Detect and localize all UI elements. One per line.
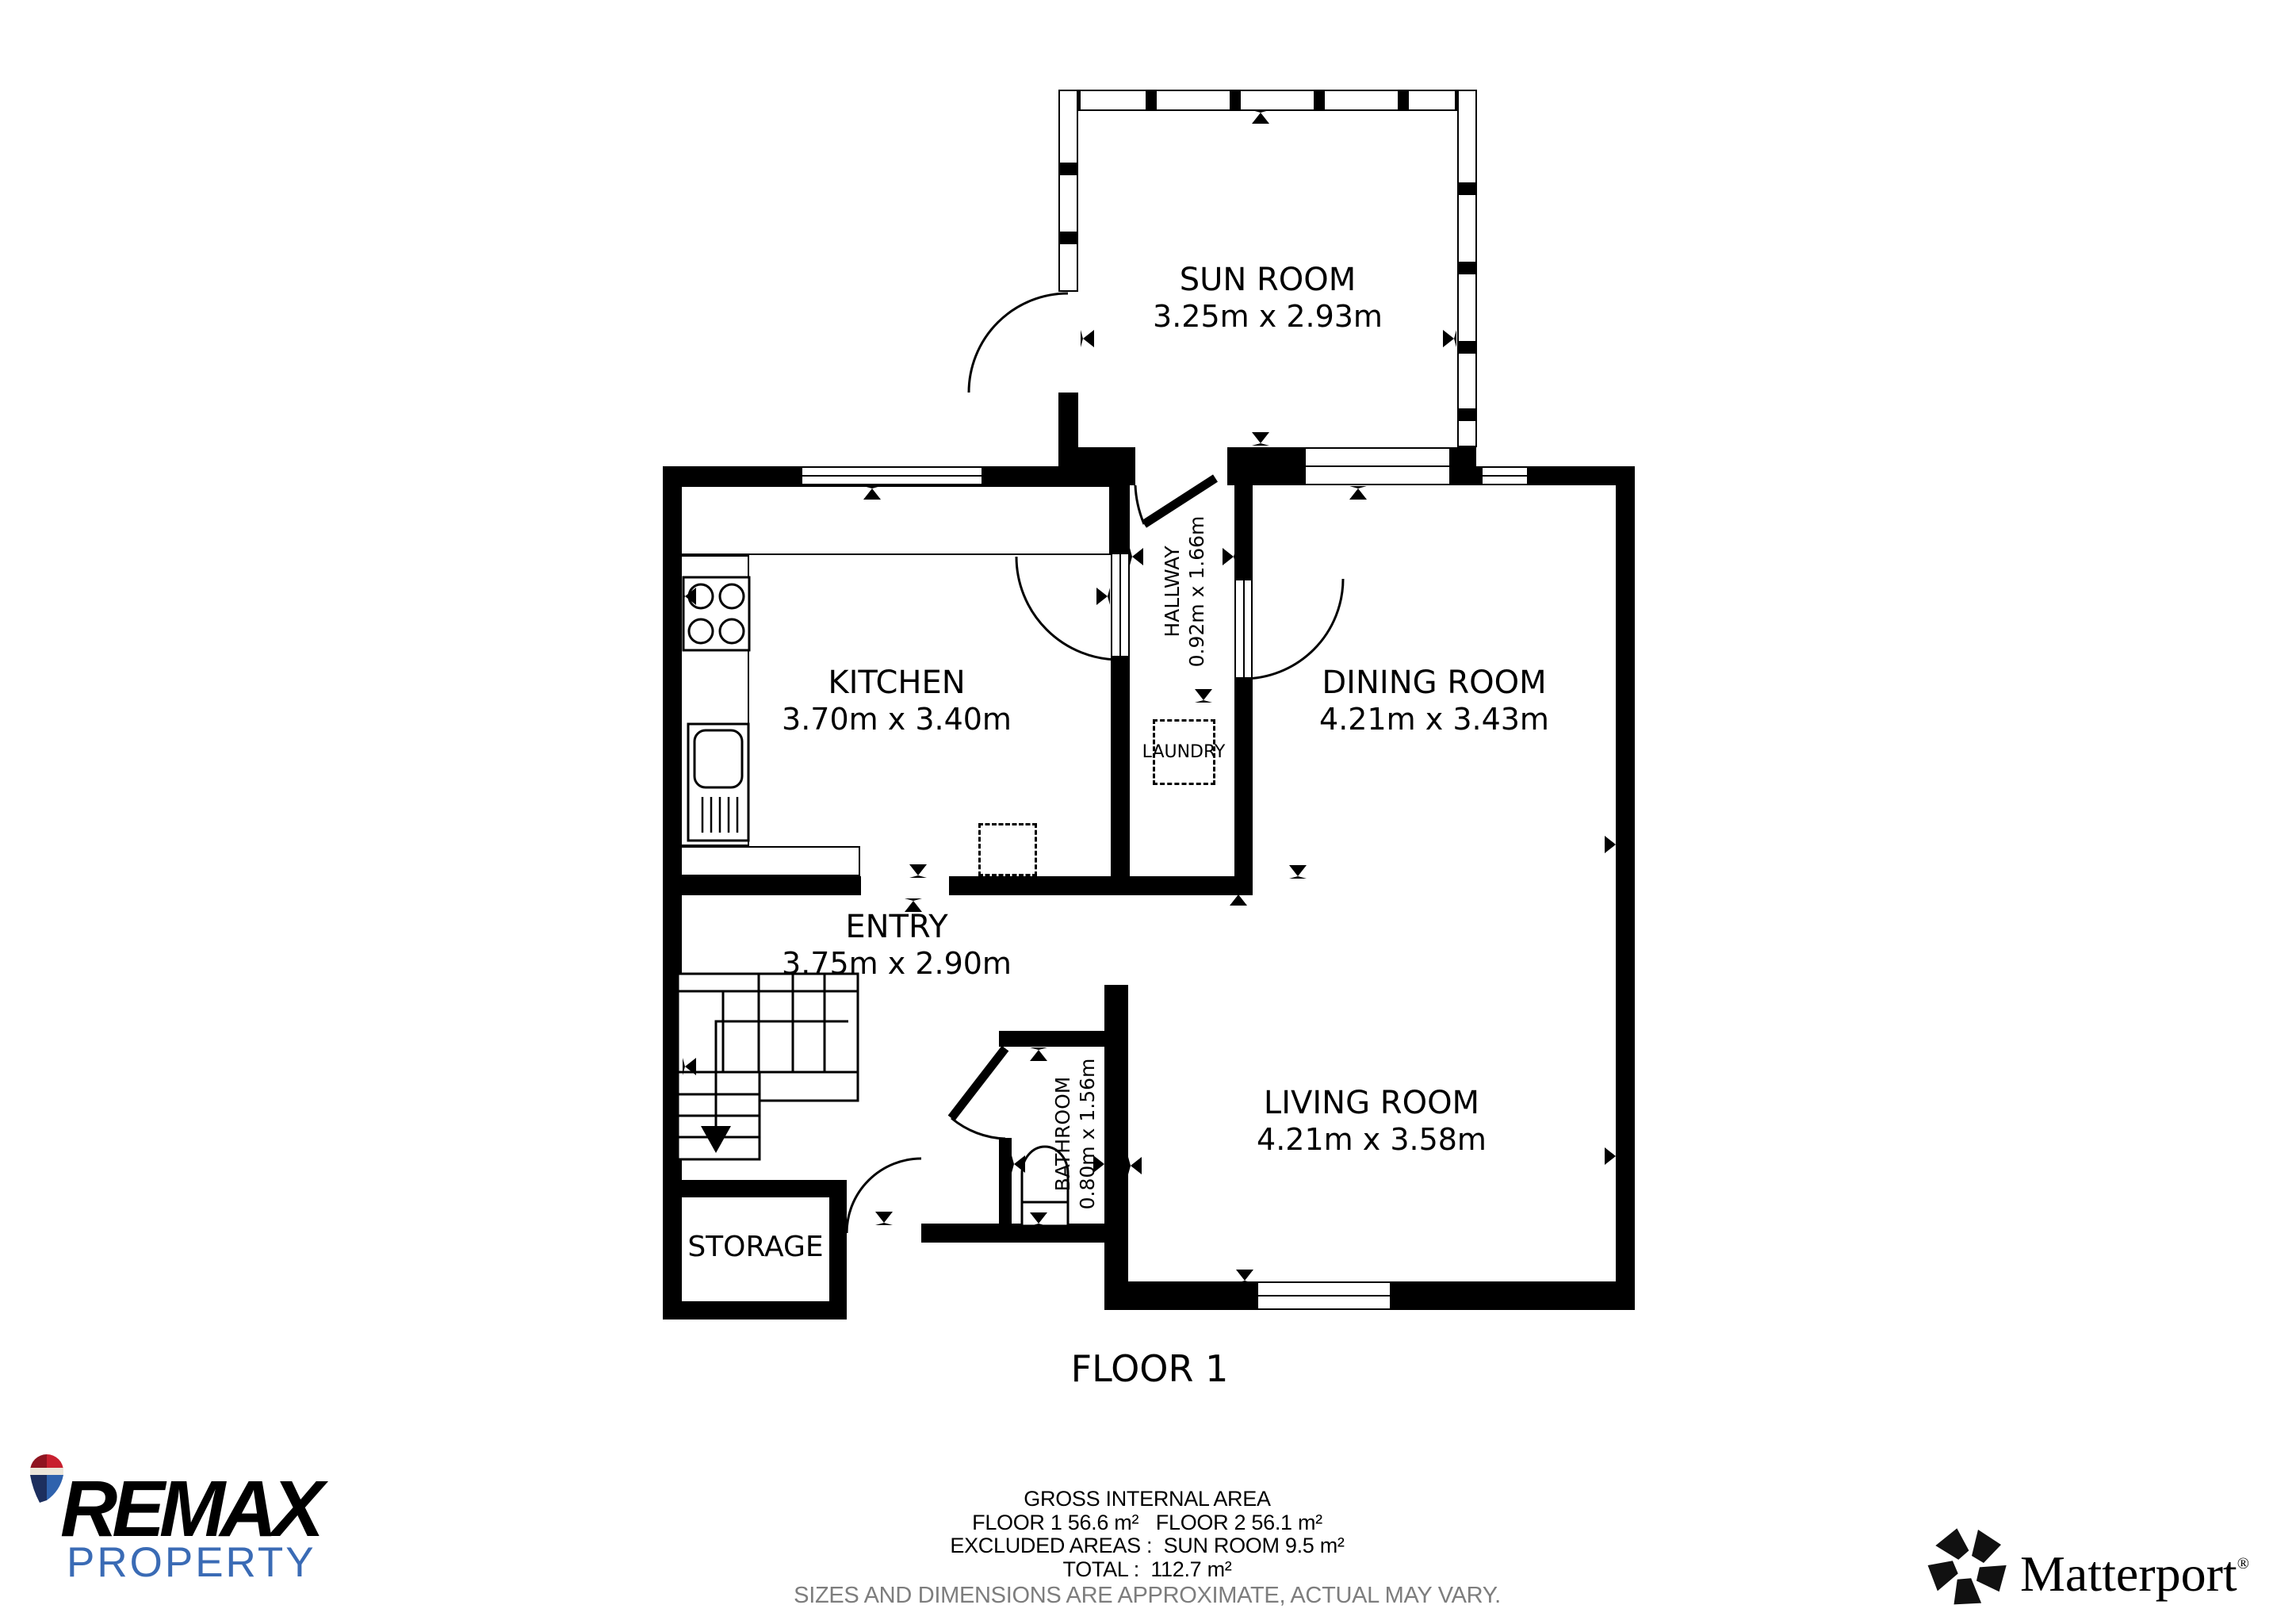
dimension-arrow <box>1012 1155 1025 1173</box>
bathroom-door-leaf <box>951 1048 1005 1118</box>
wall <box>1451 466 1481 485</box>
wall <box>983 466 1135 485</box>
window-mullion <box>1457 408 1477 421</box>
dimension-arrow <box>1252 110 1269 124</box>
floorplan-page: SUN ROOM 3.25m x 2.93m KITCHEN 3.70m x 3… <box>0 0 2296 1624</box>
wall <box>949 876 1253 895</box>
bathroom-label: BATHROOM 0.80m x 1.56m <box>1050 1059 1100 1210</box>
kitchen-door-arc <box>1016 557 1119 660</box>
wall <box>1104 985 1128 1310</box>
window-mullion <box>1146 90 1157 111</box>
dimension-arrow <box>1230 892 1247 906</box>
dining-window-small <box>1481 466 1529 485</box>
sunroom-label: SUN ROOM <box>1180 262 1357 298</box>
kitchen-door-leaf <box>1111 553 1130 657</box>
sunroom-window-wall <box>1058 90 1477 111</box>
dimension-arrow <box>683 588 696 605</box>
window-mullion <box>1457 182 1477 195</box>
kitchen-label: KITCHEN <box>828 665 965 701</box>
bathroom-dims: 0.80m x 1.56m <box>1075 1059 1100 1210</box>
kitchen-counter <box>680 485 1111 555</box>
wall <box>829 1180 847 1319</box>
area-disclaimer: SIZES AND DIMENSIONS ARE APPROXIMATE, AC… <box>794 1584 1501 1608</box>
wall <box>1111 657 1130 876</box>
wall <box>999 1138 1012 1224</box>
dimension-arrow <box>1443 330 1456 347</box>
kitchen-counter <box>680 846 860 876</box>
dimension-arrow <box>683 1058 696 1075</box>
living-label: LIVING ROOM <box>1264 1085 1479 1121</box>
wall <box>682 876 861 895</box>
laundry-label: LAUNDRY <box>1142 742 1226 762</box>
dimension-arrow <box>1252 432 1269 446</box>
stairs-down-arrow <box>701 1126 731 1153</box>
wall <box>1078 447 1135 466</box>
hallway-dims: 0.92m x 1.66m <box>1184 516 1209 668</box>
sunroom-dims: 3.25m x 2.93m <box>1153 300 1383 335</box>
wall <box>1104 1281 1257 1310</box>
wall <box>1234 679 1253 895</box>
dimension-arrow <box>1096 588 1110 605</box>
dimension-arrow <box>863 486 881 500</box>
kitchen-dims: 3.70m x 3.40m <box>782 703 1012 737</box>
dimension-arrow <box>1605 1147 1618 1165</box>
hallway-label: HALLWAY 0.92m x 1.66m <box>1160 516 1210 668</box>
wall <box>663 1180 847 1197</box>
area-title: GROSS INTERNAL AREA <box>794 1488 1501 1511</box>
matterport-pinwheel-icon <box>1927 1526 2009 1608</box>
dimension-arrow <box>1236 1270 1253 1283</box>
dining-label: DINING ROOM <box>1322 665 1546 701</box>
sunroom-window-wall <box>1058 90 1078 292</box>
area-summary: GROSS INTERNAL AREA FLOOR 1 56.6 m² FLOO… <box>794 1488 1501 1608</box>
wall <box>1391 1281 1635 1310</box>
area-total: TOTAL : 112.7 m² <box>794 1558 1501 1582</box>
window-mullion <box>1457 341 1477 354</box>
dimension-arrow <box>1081 330 1094 347</box>
window-mullion <box>1230 90 1241 111</box>
dining-door-leaf <box>1234 579 1253 679</box>
sunroom-door-arc <box>969 293 1068 393</box>
dining-window <box>1304 447 1451 485</box>
kitchen-appliance-box <box>978 823 1037 876</box>
bathroom-door-arc <box>951 1118 1005 1139</box>
living-dims: 4.21m x 3.58m <box>1257 1123 1487 1158</box>
entry-label: ENTRY <box>845 909 947 945</box>
window-mullion <box>1314 90 1325 111</box>
dimension-arrow <box>1195 689 1212 703</box>
area-floors: FLOOR 1 56.6 m² FLOOR 2 56.1 m² <box>794 1511 1501 1535</box>
dimension-arrow <box>875 1212 893 1225</box>
dimension-arrow <box>1128 1157 1142 1174</box>
wall <box>1616 466 1635 1310</box>
dimension-arrow <box>909 864 927 878</box>
wall <box>921 1224 1104 1243</box>
window-mullion <box>1058 232 1078 244</box>
wall <box>663 1301 847 1319</box>
living-room-window <box>1257 1281 1391 1310</box>
stairs-icon <box>678 974 858 1159</box>
wall <box>999 1031 1104 1047</box>
wall <box>1227 447 1304 466</box>
wall <box>1058 393 1078 466</box>
wall <box>1234 485 1253 579</box>
dimension-arrow <box>1030 1212 1047 1226</box>
dimension-arrow <box>1130 548 1143 565</box>
wall <box>1227 466 1304 485</box>
wall <box>663 466 801 485</box>
dimension-arrow <box>1349 486 1367 500</box>
window-mullion <box>1058 163 1078 175</box>
window-mullion <box>1398 90 1409 111</box>
wall <box>1451 447 1476 466</box>
dimension-arrow <box>1289 865 1307 879</box>
window-mullion <box>1457 262 1477 274</box>
registered-mark: ® <box>2237 1555 2249 1572</box>
storage-label: STORAGE <box>687 1231 823 1263</box>
bathroom-name: BATHROOM <box>1050 1059 1075 1210</box>
floor-plan: SUN ROOM 3.25m x 2.93m KITCHEN 3.70m x 3… <box>0 0 2296 1624</box>
dimension-arrow <box>1605 836 1618 853</box>
floor-title: FLOOR 1 <box>1071 1348 1229 1390</box>
dimension-arrow <box>1030 1048 1047 1061</box>
matterport-name: Matterport <box>2020 1545 2237 1602</box>
sunroom-hall-door-arc <box>1135 485 1144 524</box>
dining-dims: 4.21m x 3.43m <box>1319 703 1549 737</box>
hallway-name: HALLWAY <box>1160 516 1184 668</box>
area-excluded: EXCLUDED AREAS : SUN ROOM 9.5 m² <box>794 1534 1501 1558</box>
remax-tagline: PROPERTY <box>67 1542 316 1584</box>
entry-dims: 3.75m x 2.90m <box>782 947 1012 982</box>
kitchen-window <box>801 466 983 485</box>
remax-name: REMAX <box>60 1469 319 1549</box>
dimension-arrow <box>1223 548 1236 565</box>
wall <box>1111 485 1130 553</box>
